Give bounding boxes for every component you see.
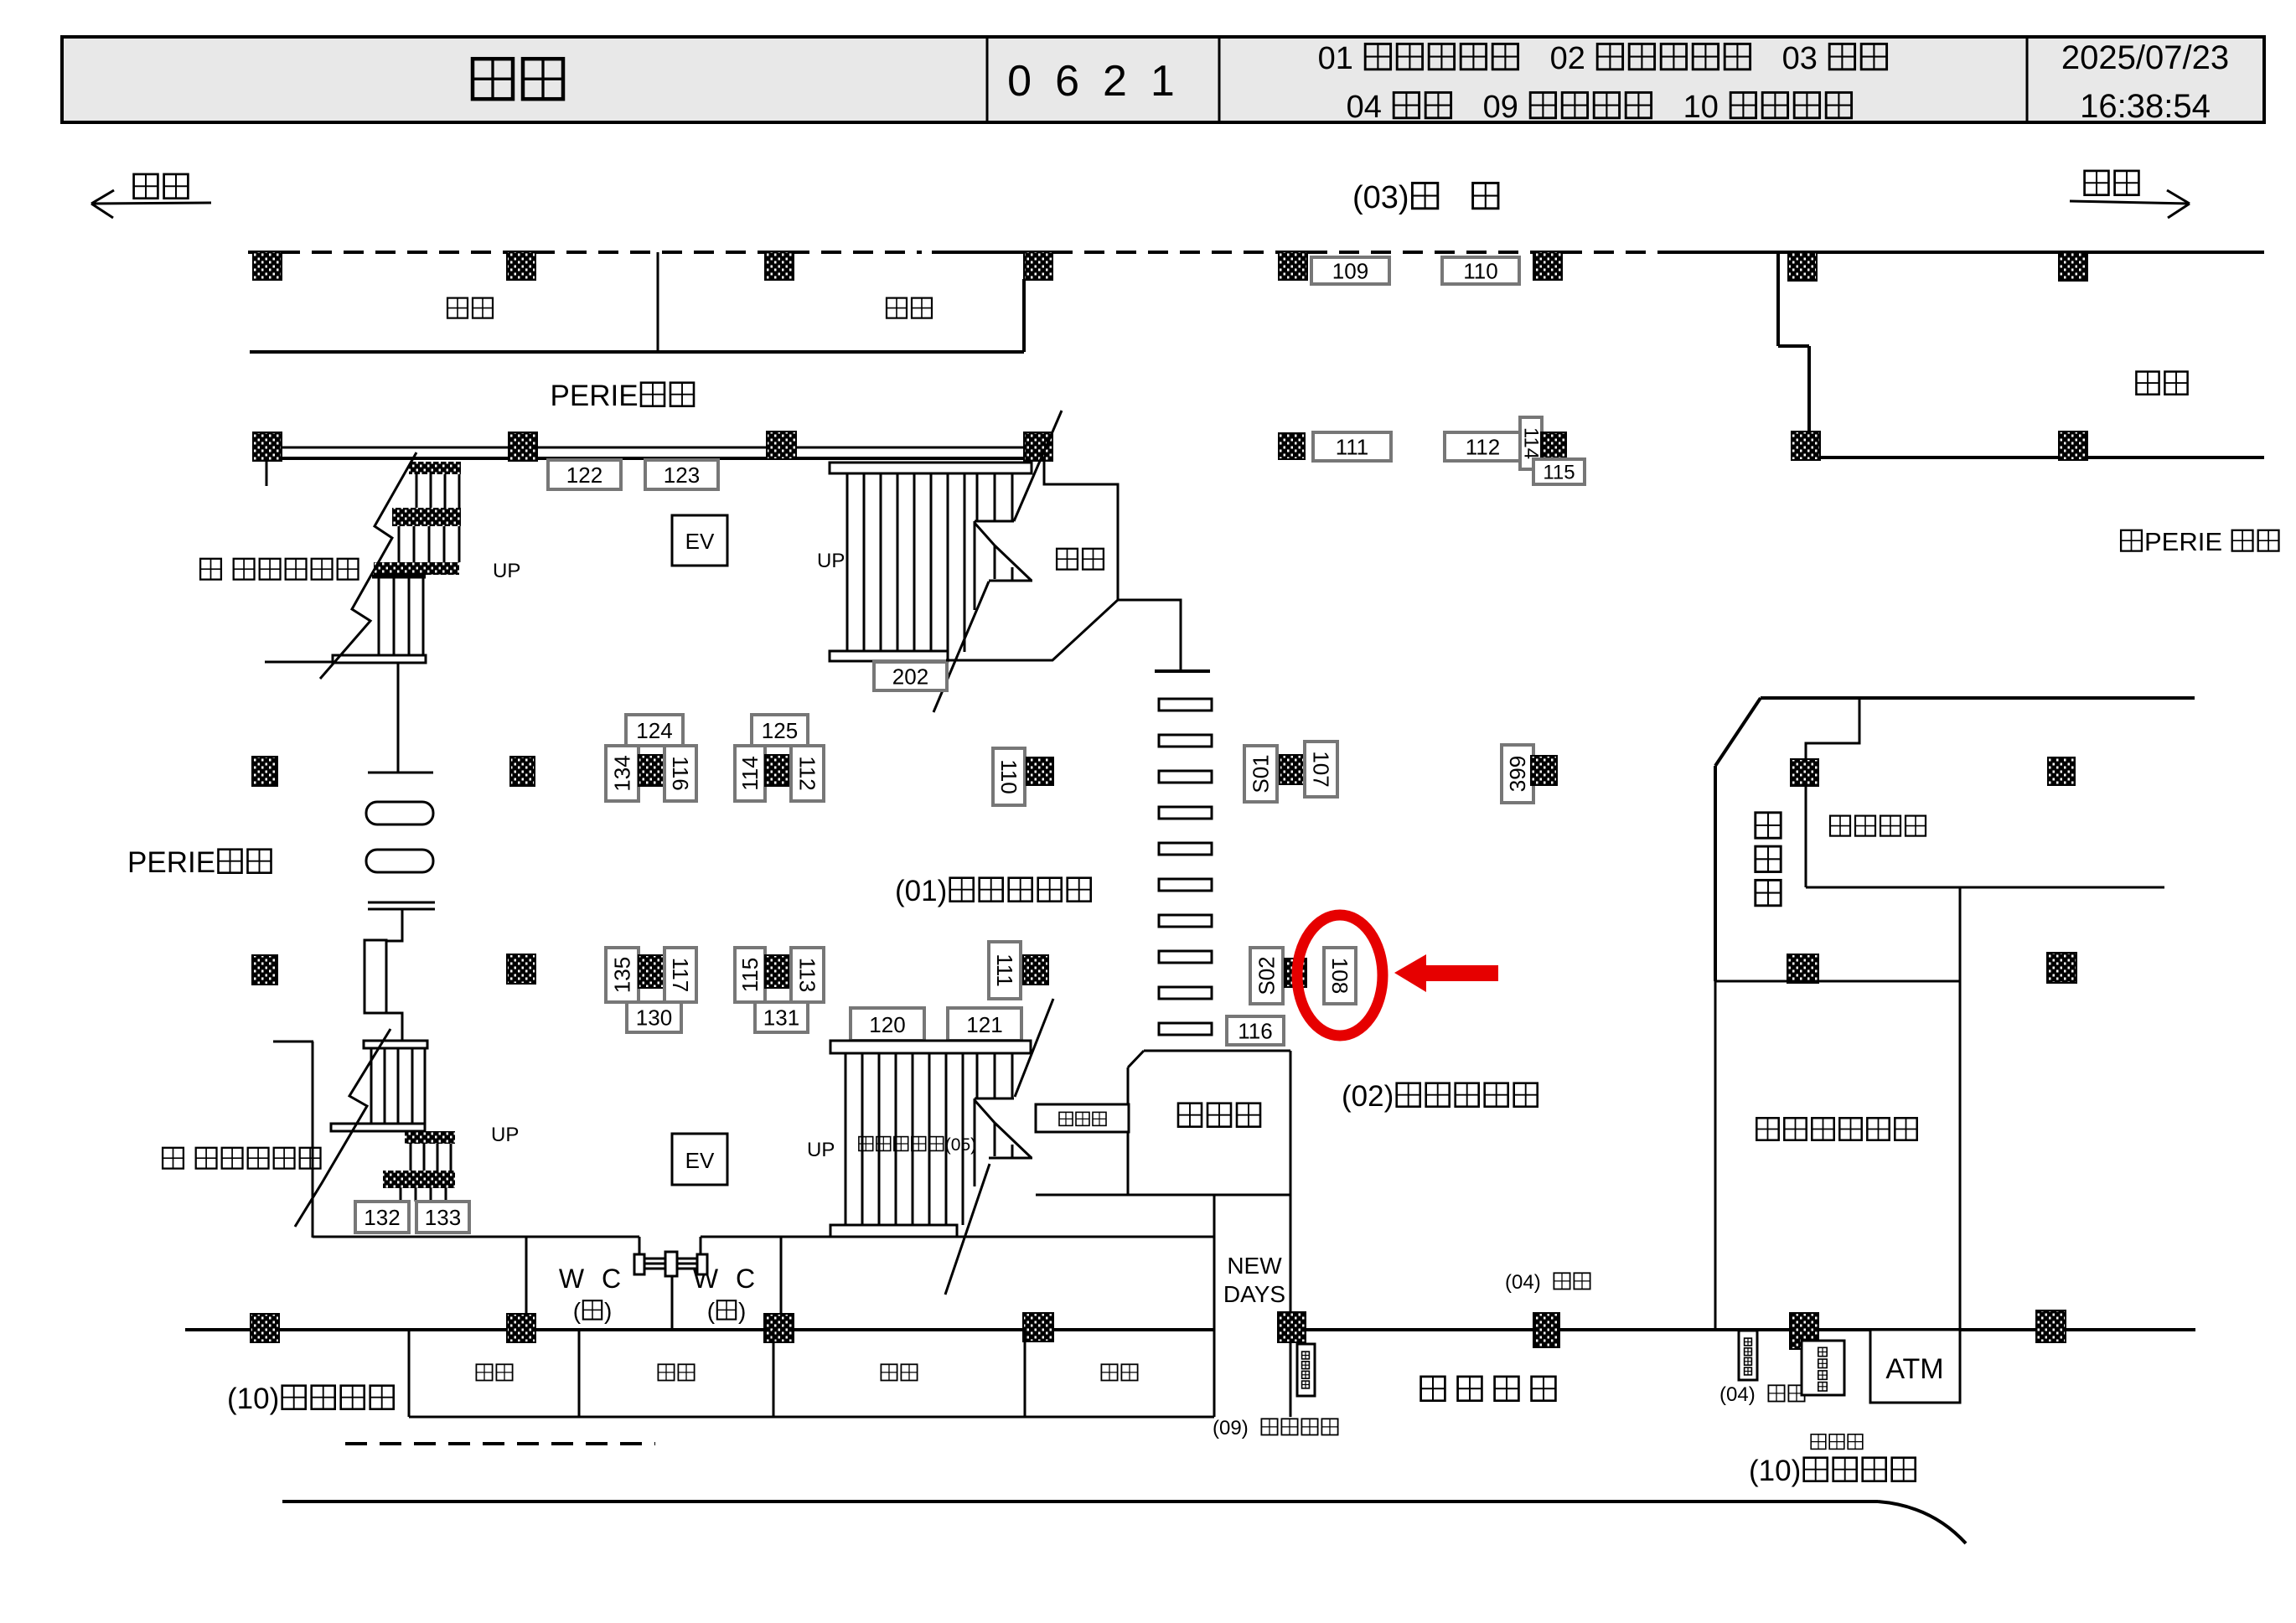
svg-text:122: 122 bbox=[566, 463, 602, 488]
svg-text:135: 135 bbox=[610, 957, 635, 993]
svg-text:114: 114 bbox=[1520, 427, 1543, 459]
svg-text:111: 111 bbox=[992, 954, 1017, 987]
svg-text:124: 124 bbox=[636, 718, 672, 743]
svg-text:130: 130 bbox=[636, 1005, 672, 1030]
svg-text:(01): (01) bbox=[895, 875, 947, 907]
svg-text:108: 108 bbox=[1327, 958, 1352, 994]
svg-text:01: 01 bbox=[1318, 41, 1353, 76]
svg-text:16:38:54: 16:38:54 bbox=[2080, 88, 2211, 125]
svg-text:10: 10 bbox=[1683, 90, 1719, 125]
svg-text:(10): (10) bbox=[227, 1383, 279, 1415]
svg-text:(05): (05) bbox=[945, 1135, 976, 1155]
svg-text:110: 110 bbox=[996, 759, 1021, 793]
svg-text:399: 399 bbox=[1505, 756, 1530, 792]
svg-text:2025/07/23: 2025/07/23 bbox=[2061, 39, 2229, 76]
svg-text:115: 115 bbox=[1543, 462, 1575, 484]
svg-text:(04): (04) bbox=[1719, 1383, 1756, 1406]
svg-text:PERIE: PERIE bbox=[127, 846, 215, 879]
svg-text:117: 117 bbox=[668, 958, 693, 992]
svg-text:202: 202 bbox=[892, 664, 928, 689]
svg-text:131: 131 bbox=[763, 1005, 799, 1030]
svg-text:116: 116 bbox=[1238, 1018, 1272, 1043]
svg-text:04: 04 bbox=[1347, 90, 1382, 125]
svg-text:ATM: ATM bbox=[1885, 1353, 1943, 1385]
svg-text:(09): (09) bbox=[1213, 1417, 1249, 1440]
svg-text:EV: EV bbox=[685, 1148, 715, 1173]
svg-text:(: ( bbox=[573, 1298, 582, 1324]
svg-text:114: 114 bbox=[737, 756, 763, 790]
svg-text:120: 120 bbox=[869, 1012, 905, 1037]
svg-text:110: 110 bbox=[1463, 258, 1497, 283]
svg-text:115: 115 bbox=[737, 958, 763, 992]
svg-text:112: 112 bbox=[795, 756, 820, 790]
svg-text:UP: UP bbox=[491, 1124, 519, 1146]
svg-text:S02: S02 bbox=[1254, 956, 1280, 995]
svg-text:EV: EV bbox=[685, 529, 715, 554]
svg-text:109: 109 bbox=[1332, 258, 1368, 283]
svg-text:PERIE: PERIE bbox=[2144, 527, 2222, 556]
svg-text:125: 125 bbox=[762, 718, 798, 743]
svg-text:UP: UP bbox=[817, 550, 845, 572]
svg-text:113: 113 bbox=[795, 958, 820, 992]
svg-text:134: 134 bbox=[610, 755, 635, 791]
svg-text:S01: S01 bbox=[1249, 754, 1274, 793]
svg-text:W C: W C bbox=[559, 1264, 626, 1294]
svg-text:116: 116 bbox=[668, 756, 693, 790]
svg-text:UP: UP bbox=[493, 560, 520, 582]
svg-text:): ) bbox=[604, 1298, 612, 1324]
svg-text:): ) bbox=[738, 1298, 746, 1324]
svg-text:PERIE: PERIE bbox=[551, 380, 639, 412]
svg-text:(: ( bbox=[707, 1298, 716, 1324]
svg-text:DAYS: DAYS bbox=[1223, 1281, 1285, 1307]
svg-text:02: 02 bbox=[1550, 41, 1585, 76]
svg-text:03: 03 bbox=[1782, 41, 1818, 76]
svg-text:0621: 0621 bbox=[1007, 57, 1198, 106]
svg-text:123: 123 bbox=[664, 463, 700, 488]
svg-text:111: 111 bbox=[1336, 434, 1369, 459]
svg-text:132: 132 bbox=[364, 1205, 400, 1230]
svg-text:NEW: NEW bbox=[1227, 1253, 1282, 1279]
svg-text:09: 09 bbox=[1483, 90, 1518, 125]
svg-text:UP: UP bbox=[807, 1139, 835, 1161]
svg-text:133: 133 bbox=[425, 1205, 461, 1230]
svg-text:112: 112 bbox=[1466, 434, 1500, 459]
svg-text:107: 107 bbox=[1309, 751, 1334, 787]
svg-text:(03): (03) bbox=[1352, 180, 1409, 215]
svg-text:(02): (02) bbox=[1342, 1080, 1394, 1113]
svg-text:(10): (10) bbox=[1749, 1455, 1801, 1487]
svg-text:121: 121 bbox=[966, 1012, 1002, 1037]
svg-text:(04): (04) bbox=[1505, 1271, 1541, 1294]
